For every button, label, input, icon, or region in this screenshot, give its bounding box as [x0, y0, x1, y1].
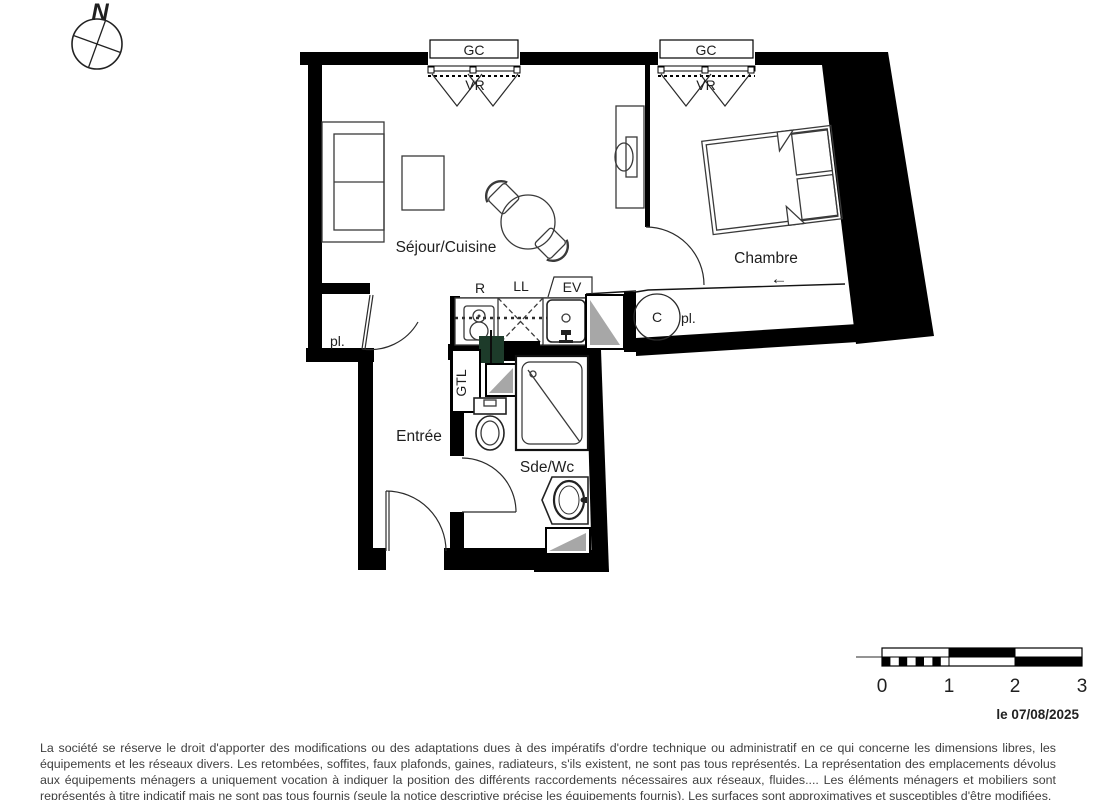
- sink-label: EV: [563, 279, 582, 295]
- desk: [615, 106, 644, 208]
- shower: [516, 356, 588, 450]
- gtl-label: GTL: [453, 369, 469, 396]
- chair: [481, 176, 522, 217]
- floor-plan-page: N GC VR: [0, 0, 1103, 800]
- bed: [702, 125, 842, 234]
- scale-bar: 0 1 2 3: [856, 648, 1087, 697]
- sofa: [322, 122, 384, 242]
- right-exterior-wall: [822, 52, 934, 344]
- sde-wc-label: Sde/Wc: [520, 459, 575, 476]
- floor-plan-drawing: N GC VR: [0, 0, 1103, 800]
- bedroom-door-arc: [646, 227, 704, 285]
- gc-left-label: GC: [464, 42, 485, 58]
- water-heater-label: C: [652, 309, 662, 325]
- kitchen-units: R LL EV: [455, 277, 592, 345]
- scale-tick-1: 1: [944, 676, 955, 697]
- toilet: [474, 398, 506, 450]
- scale-tick-2: 2: [1010, 676, 1021, 697]
- vr-right-label: VR: [696, 77, 715, 93]
- compass-north-label: N: [91, 0, 109, 26]
- entree-label: Entrée: [396, 428, 442, 445]
- gc-right-label: GC: [696, 42, 717, 58]
- window-left: GC VR: [428, 40, 520, 106]
- pillow: [791, 129, 832, 175]
- bedroom-divider-wall: [645, 65, 650, 227]
- washbasin: [542, 477, 588, 524]
- fridge-label: R: [475, 280, 485, 296]
- plan-date: le 07/08/2025: [996, 707, 1079, 722]
- chambre-label: Chambre: [734, 250, 798, 267]
- compass-icon: N: [72, 0, 122, 69]
- duct-closet: [586, 295, 624, 349]
- closet-door-arc: [362, 322, 418, 350]
- bathroom-door-arc: [462, 458, 516, 512]
- entrance-door-arc: [386, 491, 446, 551]
- vr-left-label: VR: [465, 77, 484, 93]
- duct-entree: [486, 364, 516, 396]
- scale-tick-3: 3: [1077, 676, 1088, 697]
- pillow: [797, 175, 838, 221]
- direction-arrow: ←: [771, 269, 788, 288]
- closet-chambre-label: pl.: [681, 310, 696, 326]
- duct-bathroom: [546, 528, 590, 554]
- coffee-table: [402, 156, 444, 210]
- sejour-cuisine-label: Séjour/Cuisine: [396, 239, 497, 256]
- closet-entree-label: pl.: [330, 333, 345, 349]
- window-right: GC VR: [658, 40, 755, 106]
- washing-machine-label: LL: [513, 278, 529, 294]
- legal-disclaimer: La société se réserve le droit d'apporte…: [40, 741, 1056, 800]
- scale-tick-0: 0: [877, 676, 888, 697]
